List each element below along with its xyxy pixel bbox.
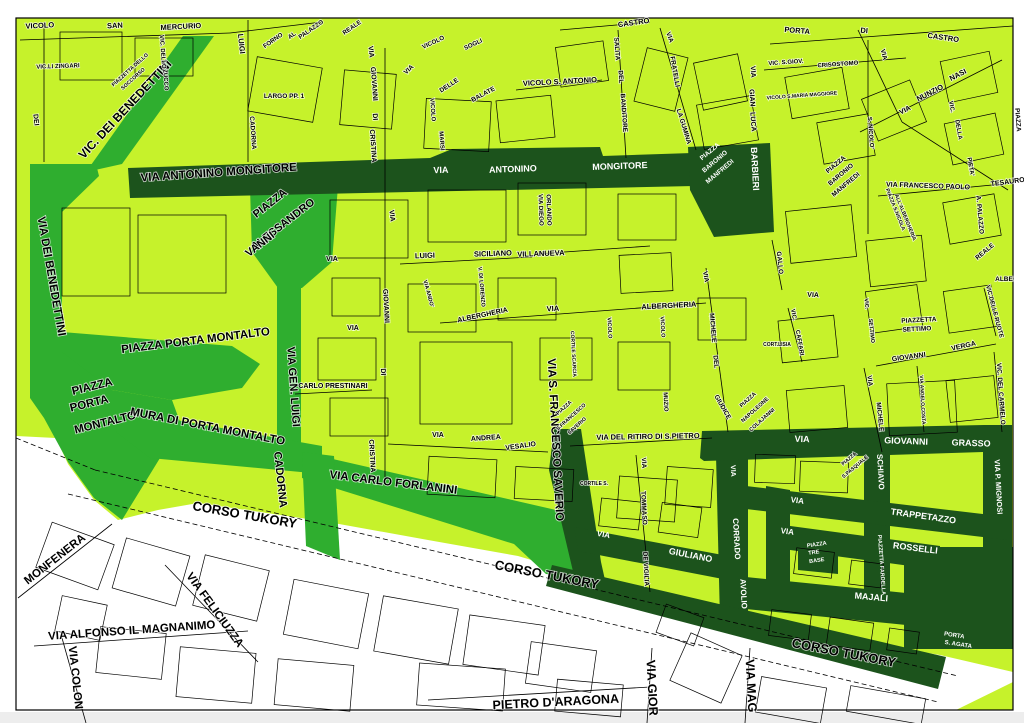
street-label: LUIGI [415, 251, 435, 261]
street-label: LUCA [748, 112, 756, 132]
street-label: VILLANUEVA [517, 248, 565, 259]
street-label: VIA MAG [743, 659, 760, 713]
street-label: VIA [387, 210, 395, 222]
street-label: VIA GIOR [644, 660, 661, 716]
street-label: DI [860, 26, 868, 36]
street-label: AVOLIO [738, 579, 749, 610]
street-label: SAN [107, 21, 123, 31]
street-label: VIA [780, 526, 795, 537]
street-label: VIA [432, 432, 444, 439]
street-label: VIA [865, 375, 873, 387]
street-label: LARGO PP. 1 [264, 93, 305, 100]
street-label: CARLO PRESTINARI [298, 383, 367, 390]
street-label: VIA [366, 46, 374, 58]
street-label: SICILIANO [474, 248, 512, 258]
map-viewport: VIC. DEI BENEDETTINIVIA ANTONINO MONGITO… [0, 0, 1024, 723]
street-label: DEI [31, 114, 39, 126]
street-label: DEL [617, 70, 625, 83]
street-label: GIOVANNI [884, 435, 928, 447]
street-label: ORLANDO [544, 194, 552, 226]
street-label: DI [371, 113, 378, 121]
street-label: GRASSO [951, 437, 990, 448]
street-label: VIA [794, 434, 810, 445]
street-label: VIA [326, 256, 338, 263]
street-label: MUZIO [661, 392, 668, 412]
street-label: VIA [807, 292, 819, 300]
region-west-connector [766, 486, 790, 612]
street-label: VIA [347, 325, 359, 332]
street-label: VIA [546, 304, 560, 314]
street-label: VIA [749, 66, 757, 78]
street-label: ANTONINO [489, 163, 537, 175]
street-label: DEL [711, 355, 719, 369]
street-label: VIA [729, 465, 737, 477]
street-label: GIAN [747, 89, 755, 107]
street-label: VIA [790, 495, 805, 506]
bottom-strip [0, 712, 1024, 723]
street-label: VIC. [862, 298, 869, 310]
map-canvas: VIC. DEI BENEDETTINIVIA ANTONINO MONGITO… [0, 0, 1024, 723]
street-label: CORT.LISIA [763, 342, 791, 348]
street-label: ALBE [995, 276, 1013, 283]
region-cadorna-south-spur [302, 452, 340, 560]
street-label: VIA DIEGO [536, 194, 544, 226]
street-label: VIA [433, 165, 449, 176]
street-label: VIA [640, 457, 648, 468]
street-label: DI [379, 368, 386, 375]
street-label: VIA DEL RITIRO DI S.PIETRO [596, 431, 700, 442]
street-label: MONGITORE [592, 160, 648, 172]
street-label: VICOLO [605, 317, 612, 339]
street-label: VICOLO [25, 20, 54, 31]
street-label: CORTILE S. [580, 481, 609, 487]
street-label: SCHIAVO [875, 454, 886, 490]
street-label: VICOLO [658, 316, 665, 338]
